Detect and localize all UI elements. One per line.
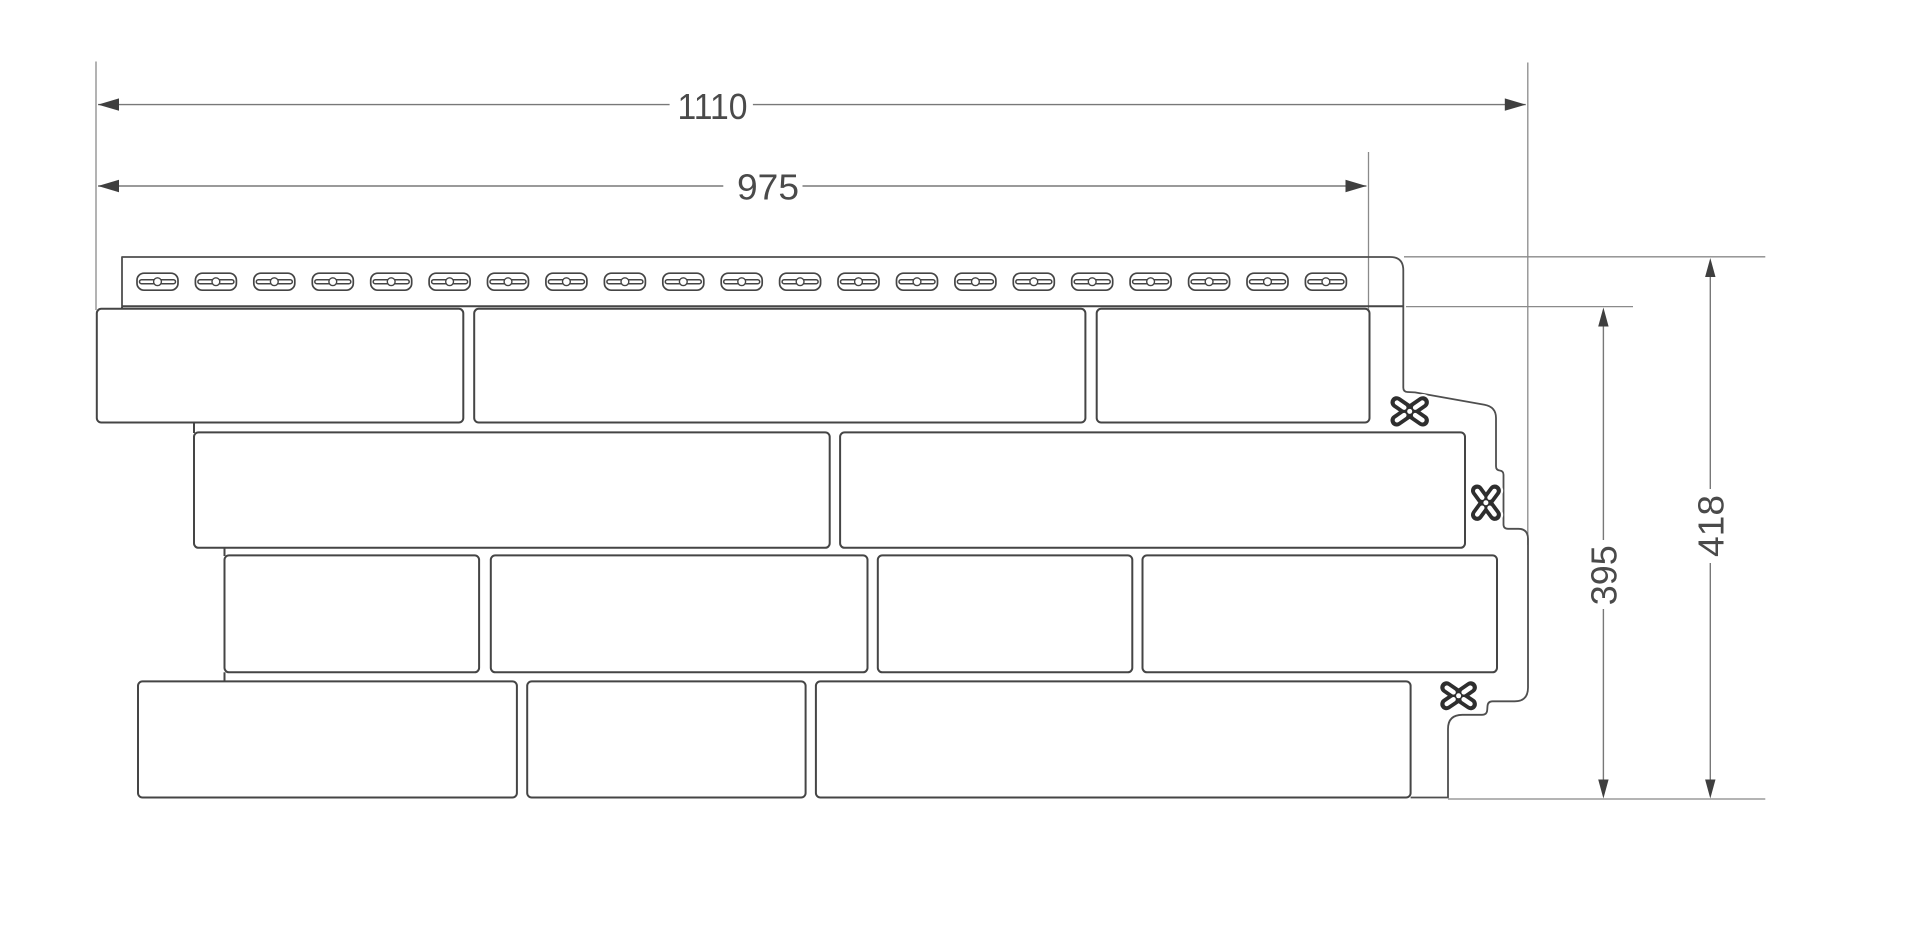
svg-text:975: 975 <box>737 166 799 207</box>
svg-text:1110: 1110 <box>678 86 748 127</box>
svg-text:395: 395 <box>1583 545 1624 605</box>
svg-text:418: 418 <box>1690 495 1731 557</box>
